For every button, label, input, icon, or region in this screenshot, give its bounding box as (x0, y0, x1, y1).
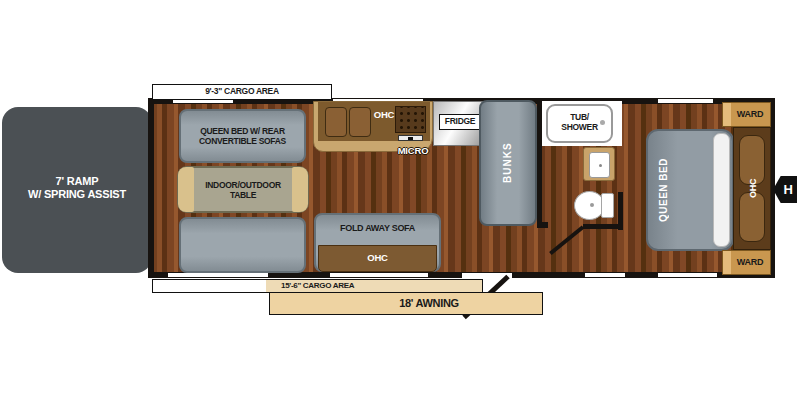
cargo-measure-top-label: 9'-3" CARGO AREA (153, 85, 331, 98)
micro-label: MICRO (388, 145, 438, 156)
wardrobe-top-label: WARD (731, 109, 769, 119)
wardrobe-bottom: WARD (722, 250, 771, 275)
garage-sofa-top: QUEEN BED W/ REAR CONVERTIBLE SOFAS (179, 109, 306, 163)
bath-wall-foot (537, 222, 548, 228)
floorplan: 7' RAMP W/ SPRING ASSIST 9'-3" CARGO ARE… (0, 0, 800, 400)
table-label-line1: INDOOR/OUTDOOR (179, 180, 307, 190)
ramp-label: 7' RAMP W/ SPRING ASSIST (2, 175, 152, 201)
garage-sofa-label-line1: QUEEN BED W/ REAR (181, 126, 304, 136)
bunks: BUNKS (479, 100, 537, 226)
stove-control-knob (408, 137, 413, 140)
toilet-flush-dot (590, 203, 594, 207)
queen-bed: QUEEN BED (646, 129, 734, 251)
sofa-ohc-label: OHC (319, 252, 436, 263)
queen-bed-label: QUEEN BED (658, 131, 669, 249)
cargo-measure-bottom-label: 15'-6" CARGO AREA (153, 280, 482, 291)
tub-drain (600, 120, 605, 125)
bath-sink-basin (589, 152, 610, 178)
fold-away-sofa-label: FOLD AWAY SOFA (316, 223, 439, 233)
window (330, 272, 428, 278)
bed-pillow (713, 133, 730, 247)
hitch-marker: H (773, 176, 797, 203)
window (658, 98, 713, 104)
tub-shower: TUB/ SHOWER (546, 104, 613, 143)
awning-label: 18' AWNING (270, 293, 542, 314)
sofa-ohc: OHC (318, 245, 437, 272)
garage-sofa-label-line2: CONVERTIBLE SOFAS (181, 136, 304, 146)
kitchen-sink (325, 107, 347, 137)
ramp-label-line1: 7' RAMP (2, 175, 152, 188)
cargo-measure-bottom: 15'-6" CARGO AREA (152, 279, 483, 293)
wall-rear (148, 98, 154, 278)
toilet-tank (601, 193, 614, 218)
fridge-label-box: FRIDGE (439, 114, 481, 130)
garage-sofa-label: QUEEN BED W/ REAR CONVERTIBLE SOFAS (181, 126, 304, 146)
indoor-outdoor-table: INDOOR/OUTDOOR TABLE (177, 166, 309, 213)
garage-sofa-bottom (179, 217, 306, 273)
table-label-line2: TABLE (179, 190, 307, 200)
ramp-label-line2: W/ SPRING ASSIST (2, 188, 152, 201)
cargo-measure-top: 9'-3" CARGO AREA (152, 84, 332, 100)
window (585, 272, 625, 278)
bedroom-ohc: OHC (733, 127, 771, 250)
bath-sink-counter (583, 147, 615, 181)
stove-cooktop (395, 106, 426, 133)
bedroom-ohc-label: OHC (748, 128, 758, 249)
fridge-label: FRIDGE (440, 115, 480, 128)
bath-door-wall (583, 224, 623, 229)
stove-control-panel (398, 135, 423, 141)
ramp-door: 7' RAMP W/ SPRING ASSIST (2, 107, 152, 273)
awning: 18' AWNING (269, 292, 543, 315)
hitch-label: H (780, 182, 796, 197)
window (658, 272, 717, 278)
wardrobe-bottom-label: WARD (731, 257, 769, 267)
wardrobe-top: WARD (722, 102, 771, 127)
table-label: INDOOR/OUTDOOR TABLE (179, 180, 307, 200)
bunks-label: BUNKS (502, 102, 513, 224)
sink-drain (599, 164, 602, 167)
